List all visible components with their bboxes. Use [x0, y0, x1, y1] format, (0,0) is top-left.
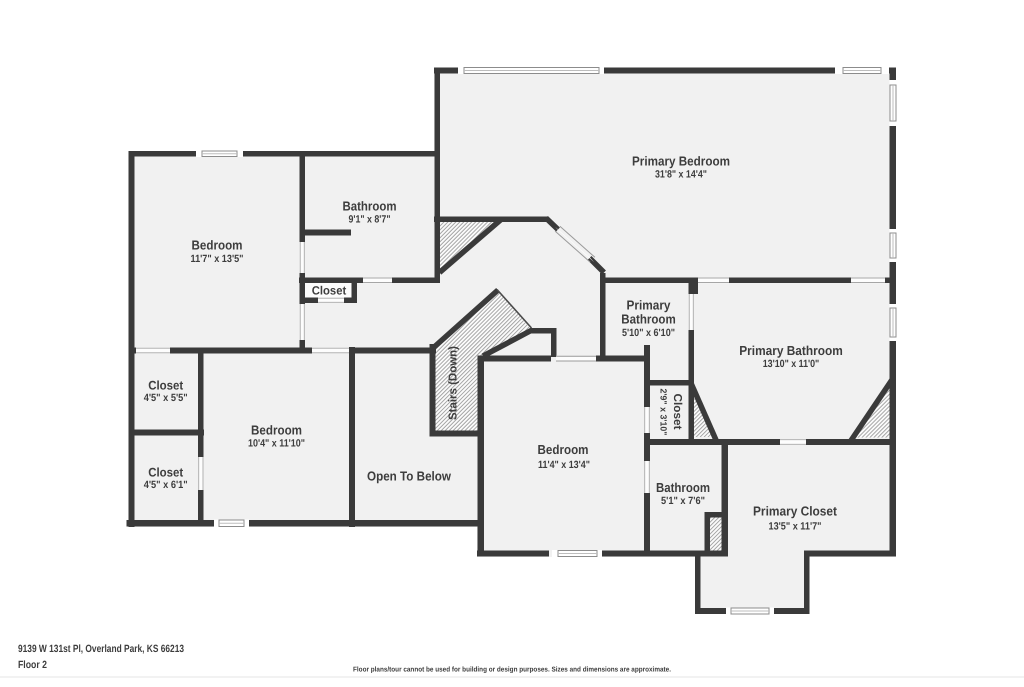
svg-text:5'10" x 6'10": 5'10" x 6'10" — [622, 327, 675, 339]
svg-text:2'9" x 3'10": 2'9" x 3'10" — [659, 389, 669, 436]
svg-text:Bathroom: Bathroom — [343, 199, 397, 214]
svg-text:11'4" x 13'4": 11'4" x 13'4" — [538, 459, 590, 471]
svg-text:4'5" x 6'1": 4'5" x 6'1" — [144, 479, 188, 491]
svg-text:4'5" x 5'5": 4'5" x 5'5" — [144, 392, 188, 404]
svg-text:Closet: Closet — [148, 379, 184, 393]
svg-text:Primary Closet: Primary Closet — [753, 504, 838, 519]
svg-text:11'7" x 13'5": 11'7" x 13'5" — [191, 253, 244, 265]
svg-text:5'1" x 7'6": 5'1" x 7'6" — [661, 495, 705, 507]
svg-text:9'1" x 8'7": 9'1" x 8'7" — [349, 214, 391, 226]
svg-text:10'4" x 11'10": 10'4" x 11'10" — [248, 438, 305, 450]
svg-text:Floor 2: Floor 2 — [18, 659, 47, 671]
svg-text:13'5" x 11'7": 13'5" x 11'7" — [769, 521, 822, 533]
svg-text:31'8" x 14'4": 31'8" x 14'4" — [655, 169, 707, 181]
svg-text:Bathroom: Bathroom — [621, 312, 676, 327]
svg-text:Open To Below: Open To Below — [367, 469, 452, 484]
svg-text:Closet: Closet — [312, 284, 347, 298]
svg-text:Closet: Closet — [148, 466, 184, 480]
svg-text:Floor plans/tour cannot be use: Floor plans/tour cannot be used for buil… — [353, 666, 671, 674]
svg-text:Bedroom: Bedroom — [192, 238, 243, 253]
svg-text:Closet: Closet — [671, 394, 683, 430]
svg-text:Stairs (Down): Stairs (Down) — [448, 346, 460, 420]
svg-text:9139 W 131st Pl, Overland Park: 9139 W 131st Pl, Overland Park, KS 66213 — [18, 643, 184, 655]
svg-text:Primary Bedroom: Primary Bedroom — [632, 154, 730, 169]
svg-text:Bedroom: Bedroom — [538, 442, 589, 457]
svg-text:Primary: Primary — [627, 298, 672, 313]
svg-text:Primary Bathroom: Primary Bathroom — [739, 343, 843, 358]
svg-text:13'10" x 11'0": 13'10" x 11'0" — [763, 358, 820, 370]
svg-text:Bathroom: Bathroom — [656, 480, 710, 495]
svg-text:Bedroom: Bedroom — [251, 423, 302, 438]
